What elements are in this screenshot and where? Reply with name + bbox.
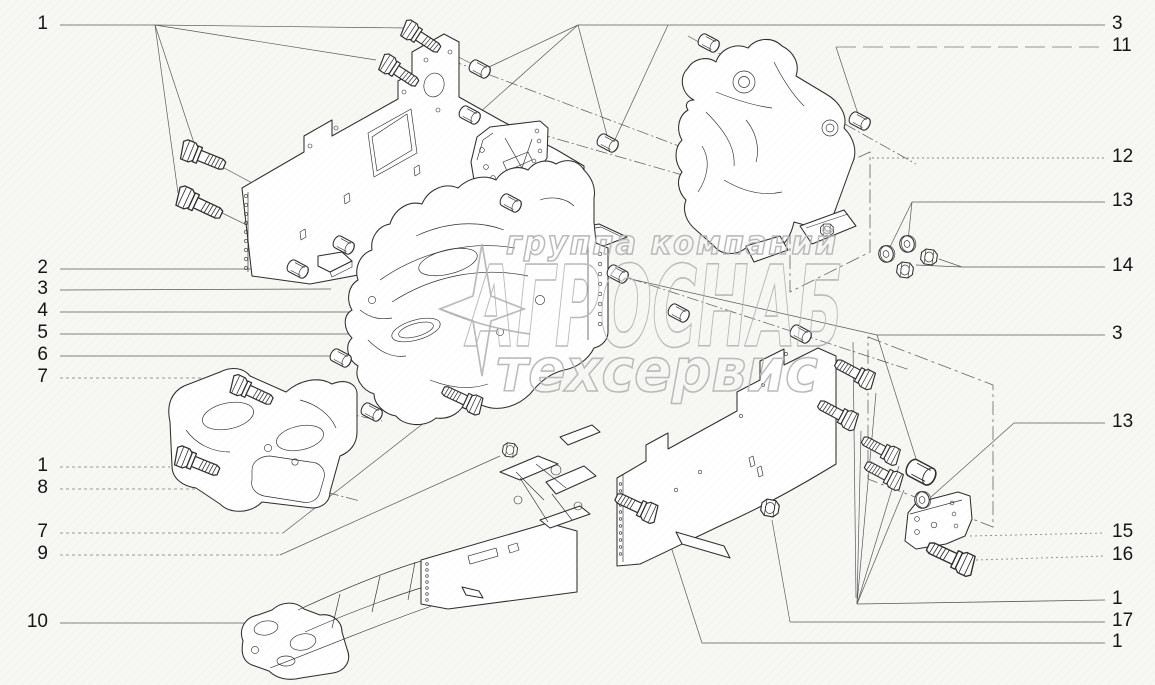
callout-label: 3	[1112, 13, 1155, 35]
callout-label: 11	[1112, 35, 1155, 57]
bushing-icon	[696, 32, 721, 54]
callout-label: 9	[0, 543, 48, 565]
callout-label: 13	[1112, 411, 1155, 433]
callout-label: 1	[1112, 631, 1155, 653]
callout-label: 5	[0, 322, 48, 344]
callout-label: 4	[0, 300, 48, 322]
watermark: группа компаний АГРОСНАБ техсервис	[440, 223, 843, 406]
bolt-icon	[173, 184, 226, 224]
callout-label: 12	[1112, 146, 1155, 168]
callout-label: 1	[0, 13, 48, 35]
parts-diagram-page: группа компаний АГРОСНАБ техсервис 1 2 3…	[0, 0, 1155, 685]
callout-label: 13	[1112, 190, 1155, 212]
callout-label: 10	[0, 611, 48, 633]
support-bracket-drawing	[169, 369, 357, 512]
bolt-icon	[177, 139, 228, 175]
bushing-icon	[847, 110, 872, 132]
washer-icon	[898, 234, 917, 254]
callout-label: 1	[0, 455, 48, 477]
nut-icon	[920, 248, 938, 265]
callout-label: 7	[0, 366, 48, 388]
callout-label: 3	[1112, 323, 1155, 345]
callout-label: 1	[1112, 588, 1155, 610]
callout-label: 8	[0, 477, 48, 499]
callout-label: 6	[0, 344, 48, 366]
callout-label: 17	[1112, 610, 1155, 632]
bolt-icon	[859, 432, 904, 467]
callout-label: 3	[0, 278, 48, 300]
callout-label: 14	[1112, 255, 1155, 277]
callout-label: 7	[0, 521, 48, 543]
bolt-icon	[923, 537, 978, 578]
callout-label: 15	[1112, 521, 1155, 543]
bushing-icon	[467, 58, 492, 80]
nut-icon	[896, 261, 914, 278]
exploded-view-drawing: группа компаний АГРОСНАБ техсервис	[0, 0, 1155, 685]
callout-label: 16	[1112, 544, 1155, 566]
callout-label: 2	[0, 257, 48, 279]
washer-icon	[877, 244, 896, 264]
spacer-bushing-icon	[904, 457, 939, 487]
watermark-line-3: техсервис	[496, 336, 818, 406]
nut-icon	[502, 442, 518, 457]
